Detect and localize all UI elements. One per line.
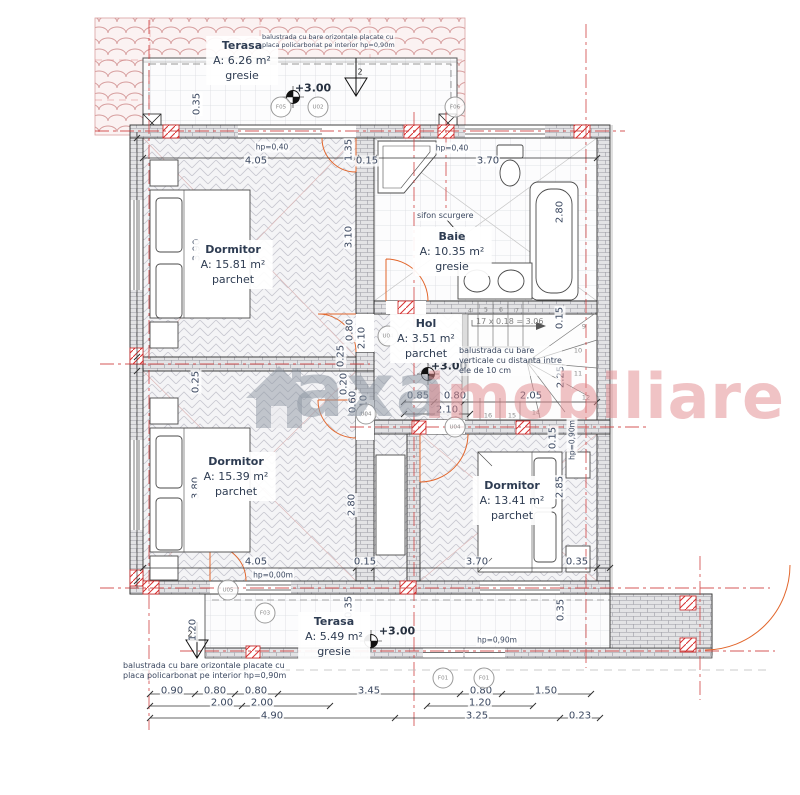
floor-plan-canvas: 0.354.050.153.701.353.903.102.800.152.25… (0, 0, 800, 795)
terrace-bottom (205, 594, 712, 658)
plan-drawing (0, 0, 800, 795)
terrace-top (143, 58, 457, 132)
stair-balustrade (462, 314, 468, 420)
